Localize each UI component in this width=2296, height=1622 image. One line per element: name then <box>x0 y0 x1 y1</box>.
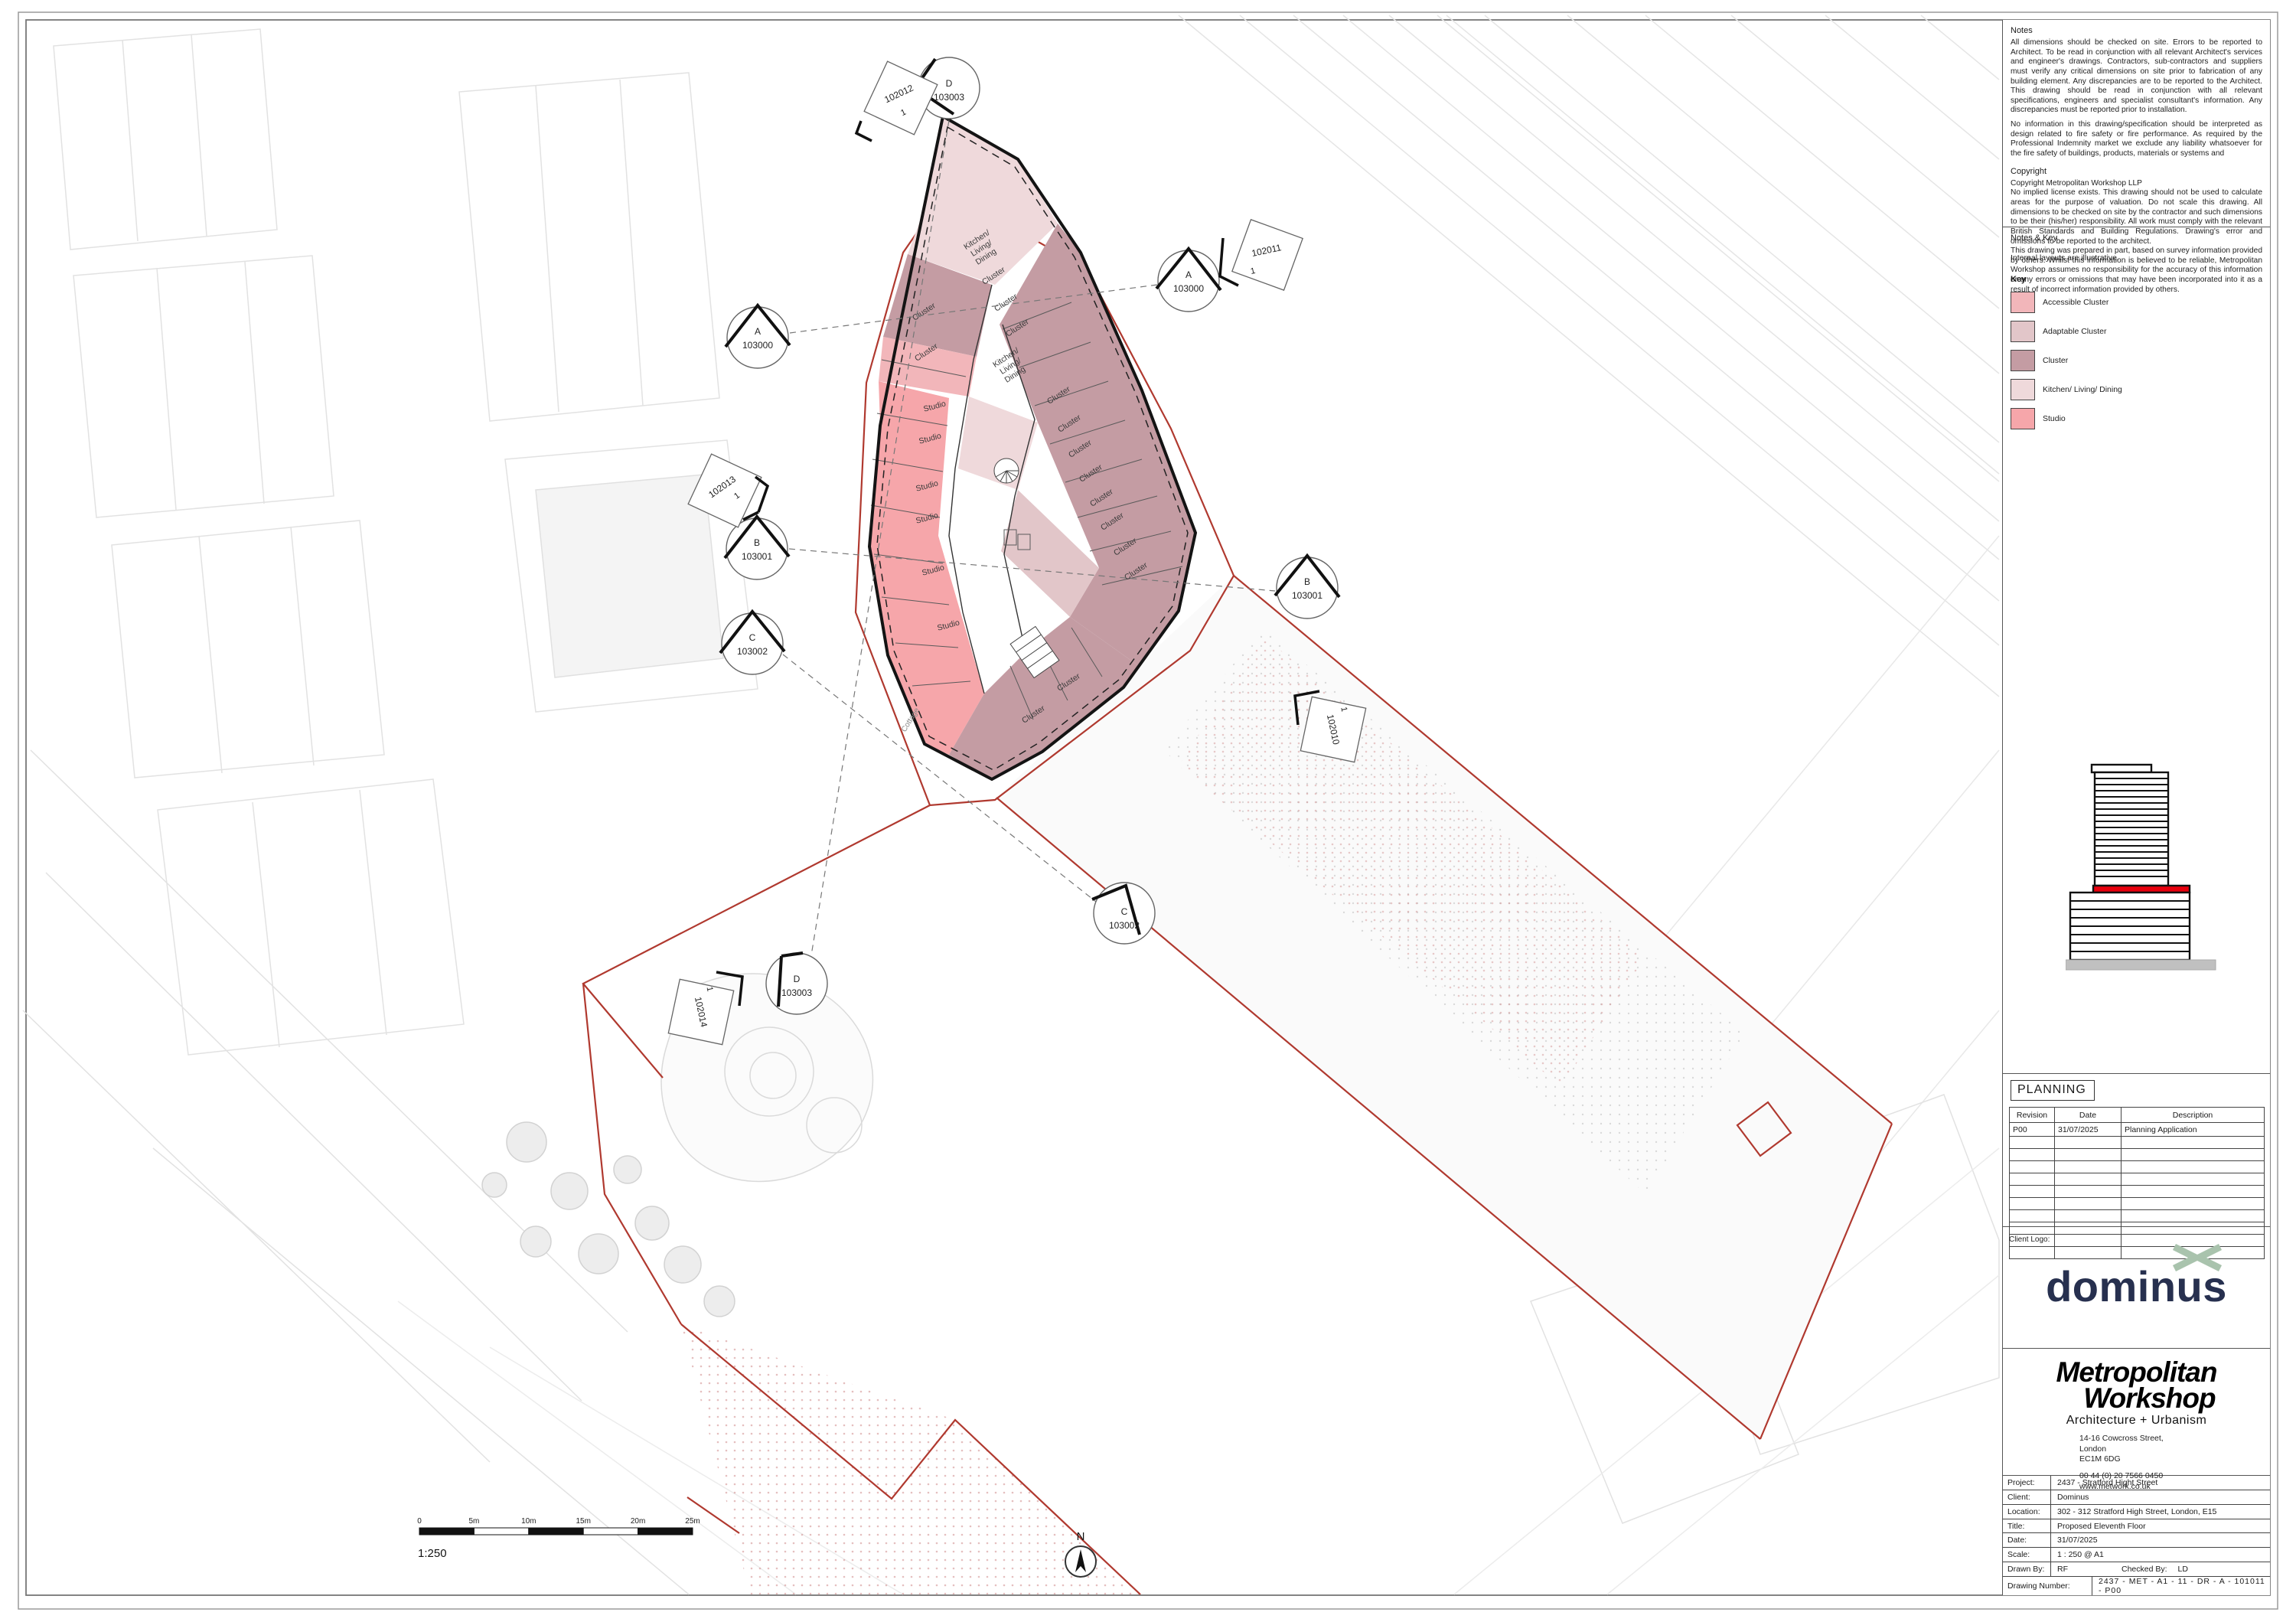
title-block: Notes All dimensions should be checked o… <box>2002 20 2270 1595</box>
marker-ref: C <box>1121 906 1128 917</box>
revision-row-empty <box>2010 1186 2265 1198</box>
project-row: Project: 2437 - Stratford Hight Street <box>2003 1476 2270 1490</box>
notes-section: Notes All dimensions should be checked o… <box>2003 20 2270 227</box>
revision-row-empty <box>2010 1210 2265 1222</box>
date-label: Date: <box>2003 1536 2050 1545</box>
drawn-by-row: Drawn By: RF Checked By: LD <box>2003 1562 2270 1576</box>
project-info-section: Project: 2437 - Stratford Hight Street C… <box>2003 1476 2270 1595</box>
description-col-header: Description <box>2122 1108 2265 1123</box>
architect-section: Metropolitan Workshop Architecture + Urb… <box>2003 1349 2270 1476</box>
address-line: EC1M 6DG <box>2079 1454 2264 1465</box>
marker-num: 103001 <box>742 551 772 562</box>
marker-num: 103000 <box>1173 283 1204 294</box>
site-plan-canvas: Kitchen/ Living/ Dining Kitchen/ Living/… <box>0 0 2296 1622</box>
copyright-line: Copyright Metropolitan Workshop LLP <box>2011 179 2262 189</box>
client-logo-section: Client Logo: dominus <box>2003 1227 2270 1349</box>
date-value: 31/07/2025 <box>2050 1533 2270 1547</box>
marker-ref: A <box>1186 269 1192 280</box>
revision-cell: P00 <box>2010 1123 2055 1137</box>
client-label: Client: <box>2003 1493 2050 1502</box>
scale-tick-label: 5m <box>468 1517 479 1526</box>
legend-swatch <box>2011 321 2035 342</box>
drawn-by-initials: RF <box>2057 1565 2068 1574</box>
scale-tick-label: 20m <box>631 1517 645 1526</box>
detail-marker-102011: 102011 1 <box>1220 220 1303 290</box>
client-logo-label: Client Logo: <box>2009 1235 2050 1244</box>
marker-num: 103000 <box>742 340 773 351</box>
marker-num: 103003 <box>781 987 812 998</box>
revision-row-empty <box>2010 1161 2265 1173</box>
client-row: Client: Dominus <box>2003 1490 2270 1504</box>
marker-num: 103002 <box>737 646 768 657</box>
revision-row-empty <box>2010 1137 2265 1149</box>
marker-ref: D <box>946 78 953 89</box>
copyright-heading: Copyright <box>2011 167 2262 176</box>
project-value: 2437 - Stratford Hight Street <box>2050 1476 2270 1490</box>
legend-swatch <box>2011 379 2035 400</box>
title-row: Title: Proposed Eleventh Floor <box>2003 1519 2270 1533</box>
drawing-number-value: 2437 - MET - A1 - 11 - DR - A - 101011 -… <box>2092 1577 2270 1595</box>
legend-label: Accessible Cluster <box>2043 298 2108 307</box>
legend-label: Studio <box>2043 414 2066 423</box>
legend-swatch <box>2011 292 2035 313</box>
notes-key-heading: Notes & Key <box>2011 233 2262 243</box>
marker-ref: B <box>754 537 760 548</box>
scale-bar: 0 5m 10m 15m 20m 25m 1:250 <box>417 1517 700 1560</box>
legend-item-kitchen-living-dining: Kitchen/ Living/ Dining <box>2011 379 2262 400</box>
checked-by-initials: LD <box>2178 1565 2188 1574</box>
dominus-mark-icon <box>2171 1242 2223 1273</box>
scale-label: Scale: <box>2003 1550 2050 1559</box>
scale-value: 1 : 250 @ A1 <box>2050 1548 2270 1562</box>
section-marker-a1: A 103000 <box>726 305 790 368</box>
legend-item-adaptable-cluster: Adaptable Cluster <box>2011 321 2262 342</box>
legend-label: Kitchen/ Living/ Dining <box>2043 385 2122 394</box>
section-marker-a2: A 103000 <box>1156 249 1221 312</box>
revision-row-empty <box>2010 1198 2265 1210</box>
key-heading: Key <box>2011 275 2262 284</box>
revision-row: P00 31/07/2025 Planning Application <box>2010 1123 2265 1137</box>
location-label: Location: <box>2003 1507 2050 1516</box>
marker-num: 103001 <box>1292 590 1322 601</box>
client-value: Dominus <box>2050 1490 2270 1504</box>
eleventh-floor-highlight <box>2093 886 2190 893</box>
legend-item-accessible-cluster: Accessible Cluster <box>2011 292 2262 313</box>
marker-ref: B <box>1304 576 1310 587</box>
scale-tick-label: 10m <box>521 1517 536 1526</box>
date-row: Date: 31/07/2025 <box>2003 1532 2270 1547</box>
legend-item-cluster: Cluster <box>2011 350 2262 371</box>
client-logo-wordmark: dominus <box>2009 1265 2264 1308</box>
drawing-number-row: Drawing Number: 2437 - MET - A1 - 11 - D… <box>2003 1576 2270 1595</box>
drawing-sheet: Kitchen/ Living/ Dining Kitchen/ Living/… <box>0 0 2296 1622</box>
north-label: N <box>1077 1530 1085 1543</box>
date-col-header: Date <box>2055 1108 2122 1123</box>
checked-by-label: Checked By: <box>2122 1565 2167 1574</box>
mw-logo-line1: Metropolitan <box>2009 1359 2264 1385</box>
drawn-by-label: Drawn By: <box>2003 1565 2050 1574</box>
section-marker-d2: D 103003 <box>766 953 827 1014</box>
section-marker-b2: B 103001 <box>1275 556 1339 618</box>
notes-paragraph: All dimensions should be checked on site… <box>2011 38 2262 116</box>
address-line: 14-16 Cowcross Street, <box>2079 1434 2264 1444</box>
scale-tick-label: 0 <box>417 1517 422 1526</box>
mw-logo-line2: Workshop <box>2009 1385 2264 1411</box>
drawn-by-value: RF Checked By: LD <box>2050 1562 2270 1576</box>
project-label: Project: <box>2003 1478 2050 1487</box>
marker-ref: C <box>749 632 756 643</box>
marker-ref: A <box>755 326 761 337</box>
scale-tick-label: 15m <box>576 1517 590 1526</box>
building-base <box>2066 960 2216 970</box>
address-line: London <box>2079 1444 2264 1455</box>
title-label: Title: <box>2003 1522 2050 1531</box>
architect-tagline: Architecture + Urbanism <box>2009 1414 2264 1428</box>
planning-status-box: PLANNING <box>2011 1080 2095 1101</box>
location-row: Location: 302 - 312 Stratford High Stree… <box>2003 1504 2270 1519</box>
marker-ref: D <box>794 974 801 984</box>
drawing-title-value: Proposed Eleventh Floor <box>2050 1519 2270 1533</box>
planning-section: PLANNING Revision Date Description P00 3… <box>2003 1074 2270 1227</box>
key-note: Internal layouts are illustrative. <box>2011 253 2262 263</box>
revision-row-empty <box>2010 1173 2265 1186</box>
notes-paragraph: No information in this drawing/specifica… <box>2011 120 2262 159</box>
scale-row: Scale: 1 : 250 @ A1 <box>2003 1547 2270 1562</box>
client-logo: dominus <box>2009 1265 2264 1308</box>
legend-swatch <box>2011 408 2035 429</box>
revision-col-header: Revision <box>2010 1108 2055 1123</box>
description-cell: Planning Application <box>2122 1123 2265 1137</box>
date-cell: 31/07/2025 <box>2055 1123 2122 1137</box>
location-value: 302 - 312 Stratford High Street, London,… <box>2050 1505 2270 1519</box>
section-marker-c2: C 103002 <box>1092 883 1155 944</box>
scale-ratio: 1:250 <box>418 1547 447 1560</box>
metropolitan-workshop-logo: Metropolitan Workshop <box>2009 1359 2264 1411</box>
marker-num: 103002 <box>1109 920 1140 931</box>
revision-row-empty <box>2010 1149 2265 1161</box>
key-section: Notes & Key Internal layouts are illustr… <box>2003 227 2270 1074</box>
drawing-number-label: Drawing Number: <box>2003 1581 2092 1591</box>
architect-address: 14-16 Cowcross Street, London EC1M 6DG <box>2079 1434 2264 1465</box>
legend-swatch <box>2011 350 2035 371</box>
marker-num: 103003 <box>934 92 964 103</box>
legend-item-studio: Studio <box>2011 408 2262 429</box>
scale-tick-label: 25m <box>685 1517 700 1526</box>
building-key-diagram <box>2066 762 2219 980</box>
section-marker-c1: C 103002 <box>720 612 784 674</box>
notes-heading: Notes <box>2011 26 2262 35</box>
legend-label: Cluster <box>2043 356 2068 365</box>
legend-label: Adaptable Cluster <box>2043 327 2106 336</box>
